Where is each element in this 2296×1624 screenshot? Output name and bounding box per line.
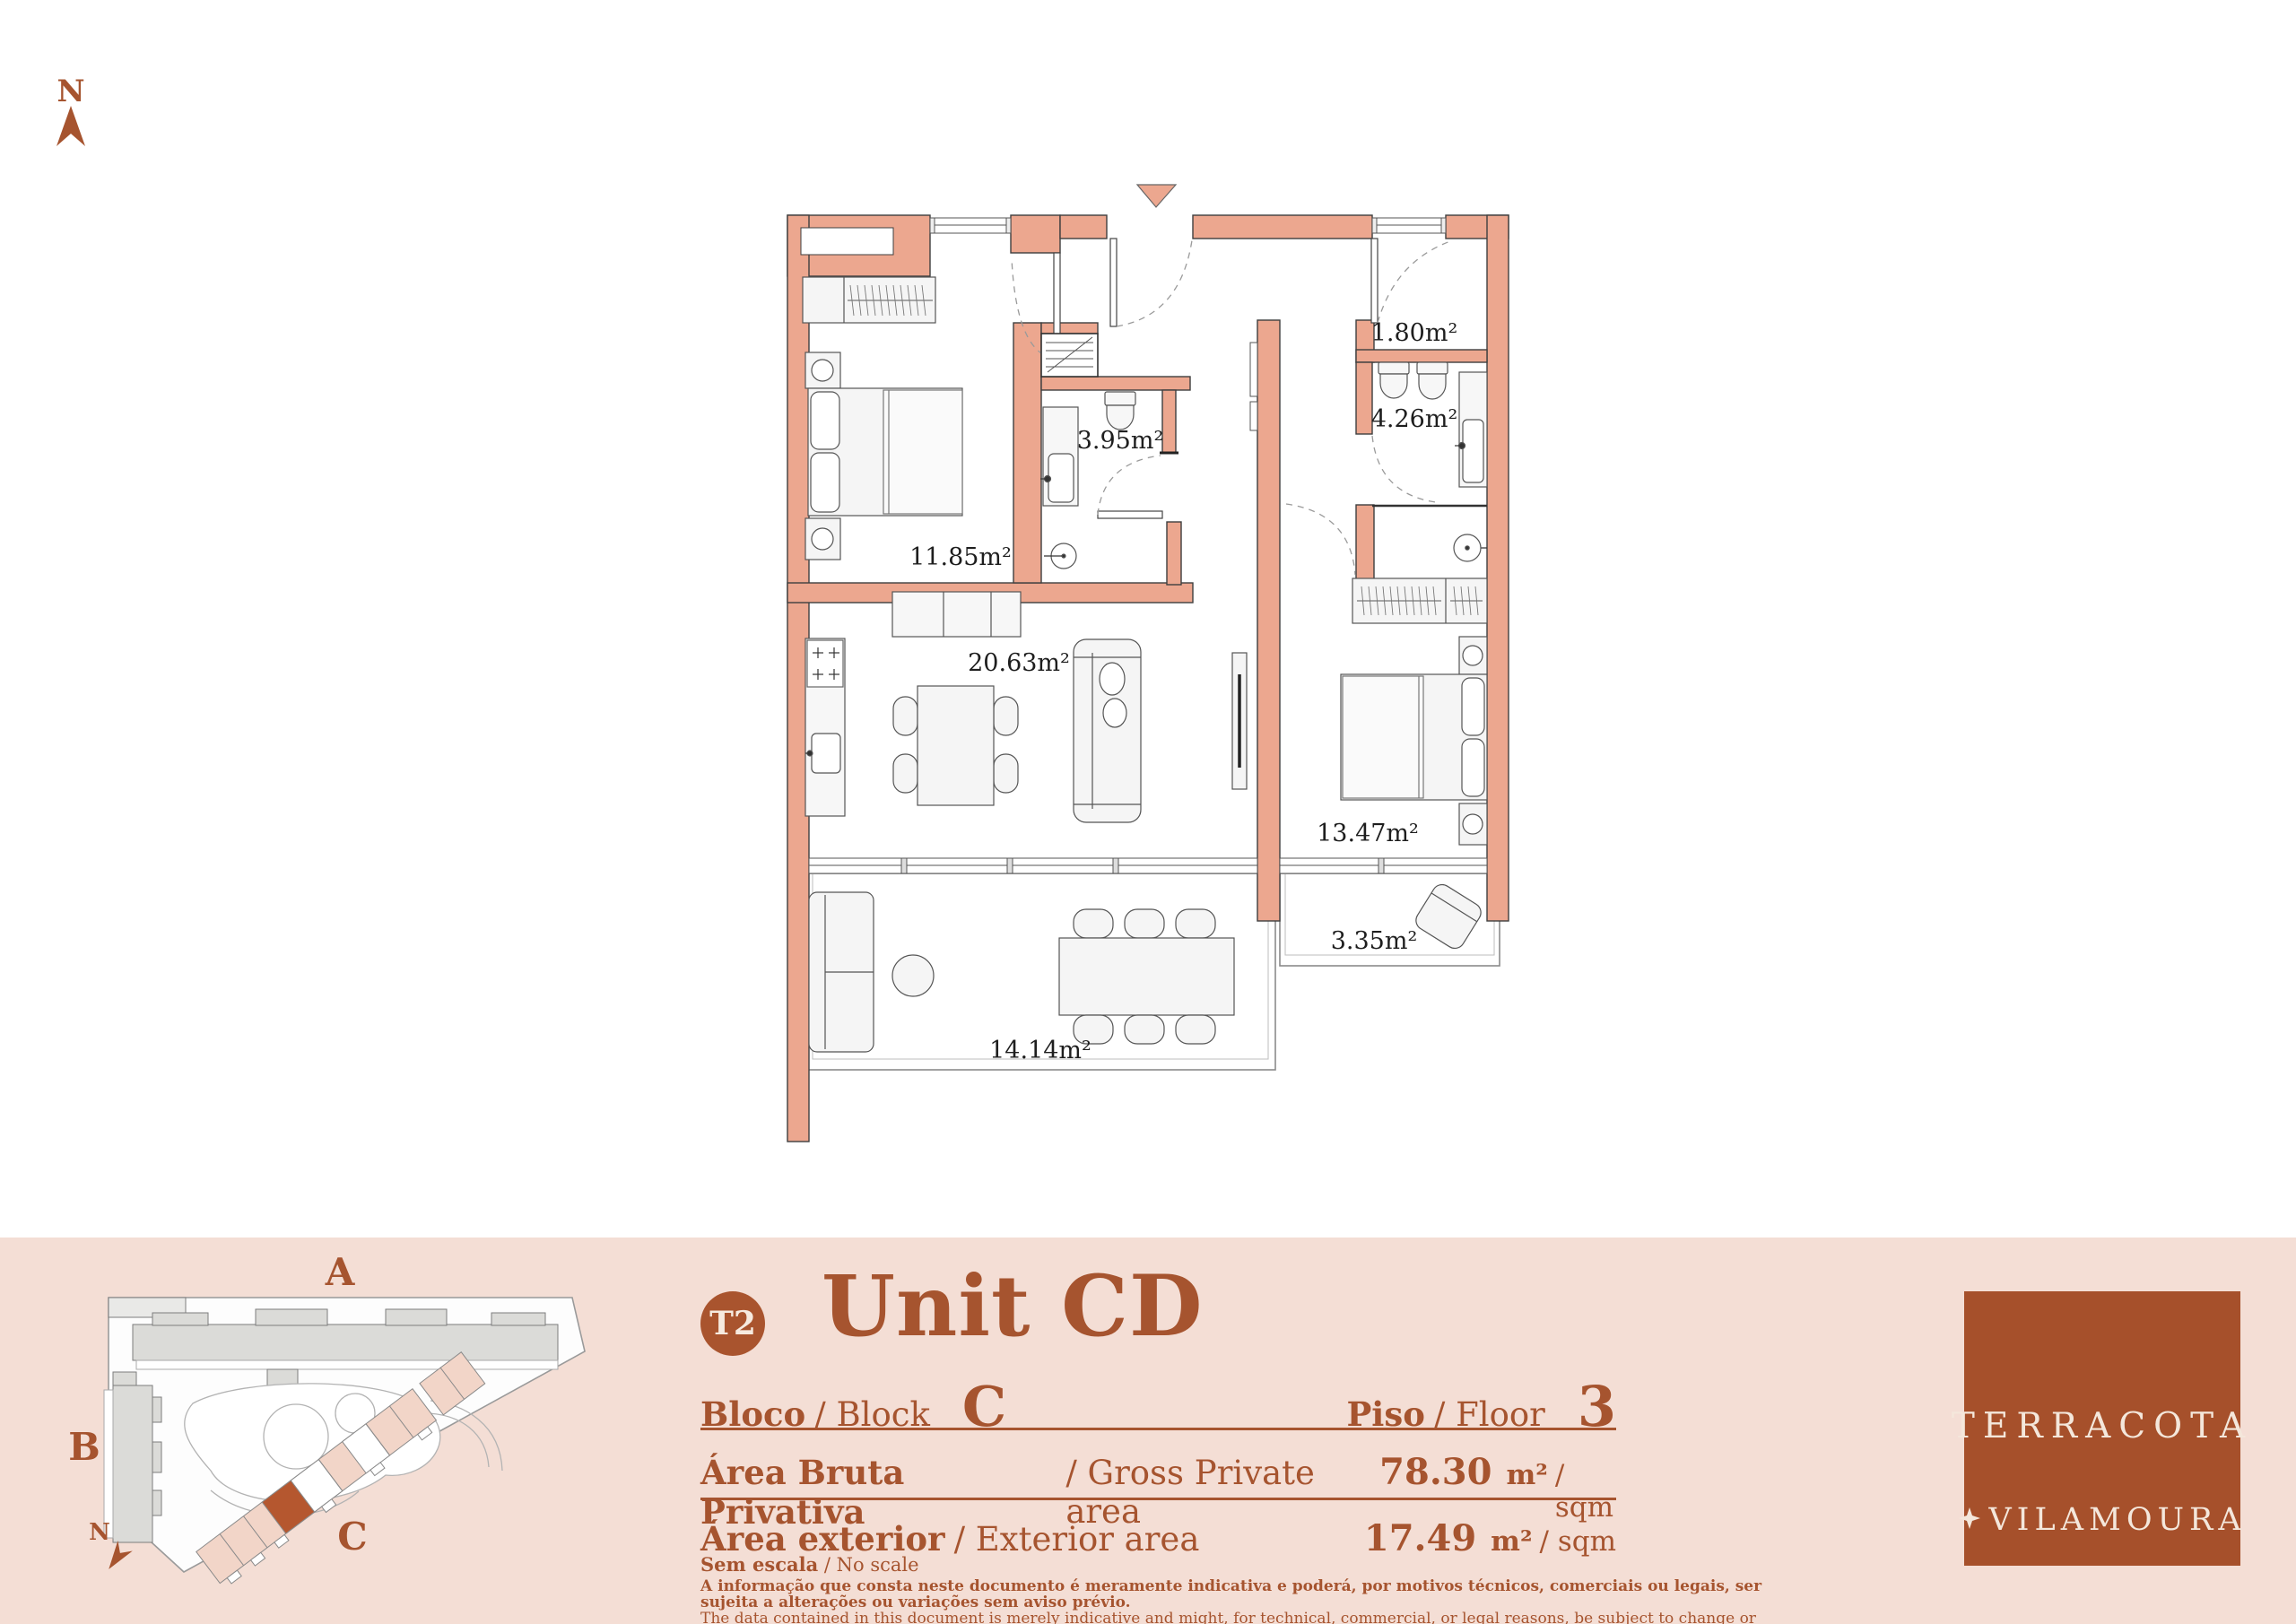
site-plan: A B C N — [45, 1246, 619, 1624]
chair — [1125, 909, 1164, 938]
kitchen-cabinets — [892, 592, 1021, 637]
north-arrow: N — [57, 74, 85, 146]
chair — [1125, 1015, 1164, 1044]
floor-plan: N — [0, 0, 2296, 1238]
brand-star-icon — [1958, 1502, 1981, 1538]
gross-value: 78.30 — [1379, 1451, 1492, 1493]
dining-table — [918, 686, 994, 805]
side-table — [892, 955, 934, 996]
divider-rule — [700, 1428, 1616, 1430]
site-label-b: B — [68, 1425, 100, 1469]
lounge-chair — [1413, 881, 1485, 951]
chair — [1176, 1015, 1215, 1044]
label-bathroom1: 3.95m² — [1077, 427, 1164, 455]
ext-value: 17.49 — [1364, 1517, 1476, 1559]
chair — [1074, 909, 1113, 938]
disclaimer-pt: A informação que consta neste documento … — [700, 1578, 1777, 1611]
chair — [1176, 909, 1215, 938]
site-block-b — [104, 1372, 161, 1542]
disclaimer-en: The data contained in this document is m… — [700, 1611, 1777, 1624]
ext-unit-en: / sqm — [1540, 1525, 1616, 1558]
scale-note-en: / No scale — [824, 1554, 919, 1576]
ext-label-en: / Exterior area — [954, 1520, 1200, 1559]
bathroom2-fixtures — [1372, 362, 1487, 561]
sink-icon — [812, 734, 840, 773]
label-bedroom1: 11.85m² — [909, 543, 1012, 571]
label-terrace: 14.14m² — [989, 1037, 1091, 1064]
chair — [893, 754, 918, 793]
typology-badge: T2 — [700, 1291, 765, 1356]
site-label-a: A — [325, 1250, 356, 1294]
divider-rule — [700, 1498, 1616, 1500]
ext-unit: m² — [1491, 1525, 1532, 1558]
gross-unit-en: / sqm — [1555, 1459, 1616, 1524]
disclaimer: A informação que consta neste documento … — [700, 1578, 1777, 1624]
entry-marker-icon — [1137, 185, 1176, 207]
chair — [994, 754, 1018, 793]
scale-note-pt: Sem escala — [700, 1553, 818, 1576]
info-band: A B C N T2 Unit CD Bloco / Block C Piso — [0, 1238, 2296, 1624]
toilet-icon — [1378, 362, 1409, 374]
unit-title: Unit CD — [822, 1257, 1204, 1356]
site-label-c: C — [337, 1515, 367, 1559]
stove-icon — [807, 640, 843, 687]
label-bathroom2: 4.26m² — [1371, 405, 1458, 433]
label-bedroom2: 13.47m² — [1317, 820, 1419, 847]
north-label: N — [57, 74, 84, 109]
label-balcony: 3.35m² — [1331, 927, 1418, 955]
wall-niche — [801, 228, 893, 255]
label-living: 20.63m² — [968, 649, 1070, 677]
chair — [893, 697, 918, 735]
toilet-icon — [1105, 392, 1135, 405]
north-needle-icon — [57, 106, 85, 146]
label-closet: 1.80m² — [1371, 319, 1458, 347]
bathroom1-fixtures — [1040, 392, 1135, 569]
site-north-label: N — [89, 1519, 110, 1546]
bedroom2-furniture — [1341, 578, 1487, 845]
brand-logo: TERRACOTA VILAMOURA — [1964, 1291, 2240, 1566]
brand-location: VILAMOURA — [1988, 1502, 2246, 1538]
bedroom1-furniture — [803, 277, 962, 560]
scale-note: Sem escala / No scale — [700, 1553, 919, 1576]
brand-name: TERRACOTA — [1952, 1406, 2253, 1446]
outdoor-table — [1059, 938, 1234, 1015]
shelf-closet — [1041, 334, 1098, 377]
living-furniture — [893, 639, 1247, 822]
hall-mirror — [1250, 343, 1257, 396]
floorplan-sheet: N — [0, 0, 2296, 1624]
bidet-icon — [1417, 362, 1448, 374]
gross-unit: m² — [1506, 1459, 1547, 1491]
chair — [994, 697, 1018, 735]
